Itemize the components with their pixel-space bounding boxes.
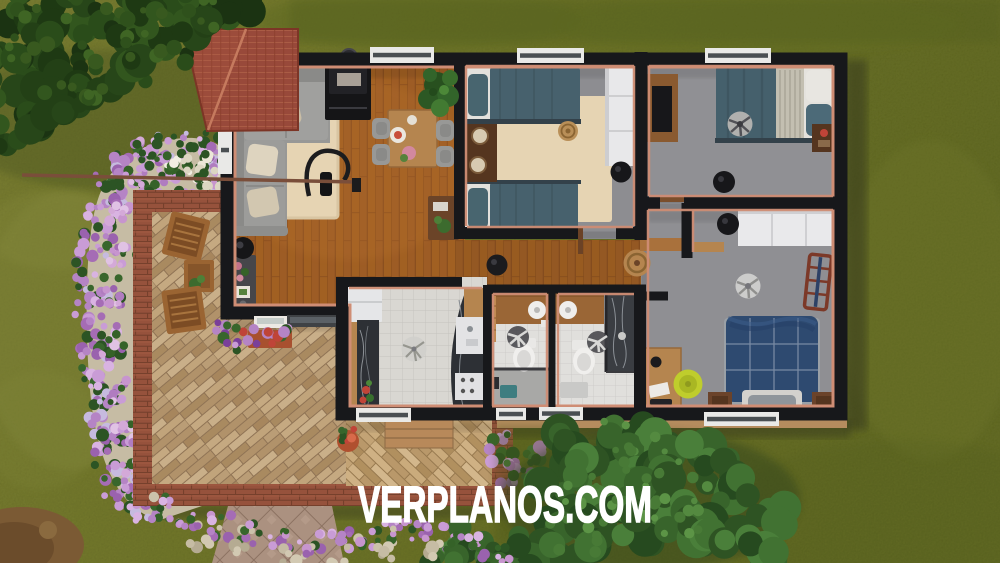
svg-text:VERPLANOS.COM: VERPLANOS.COM: [358, 476, 652, 533]
